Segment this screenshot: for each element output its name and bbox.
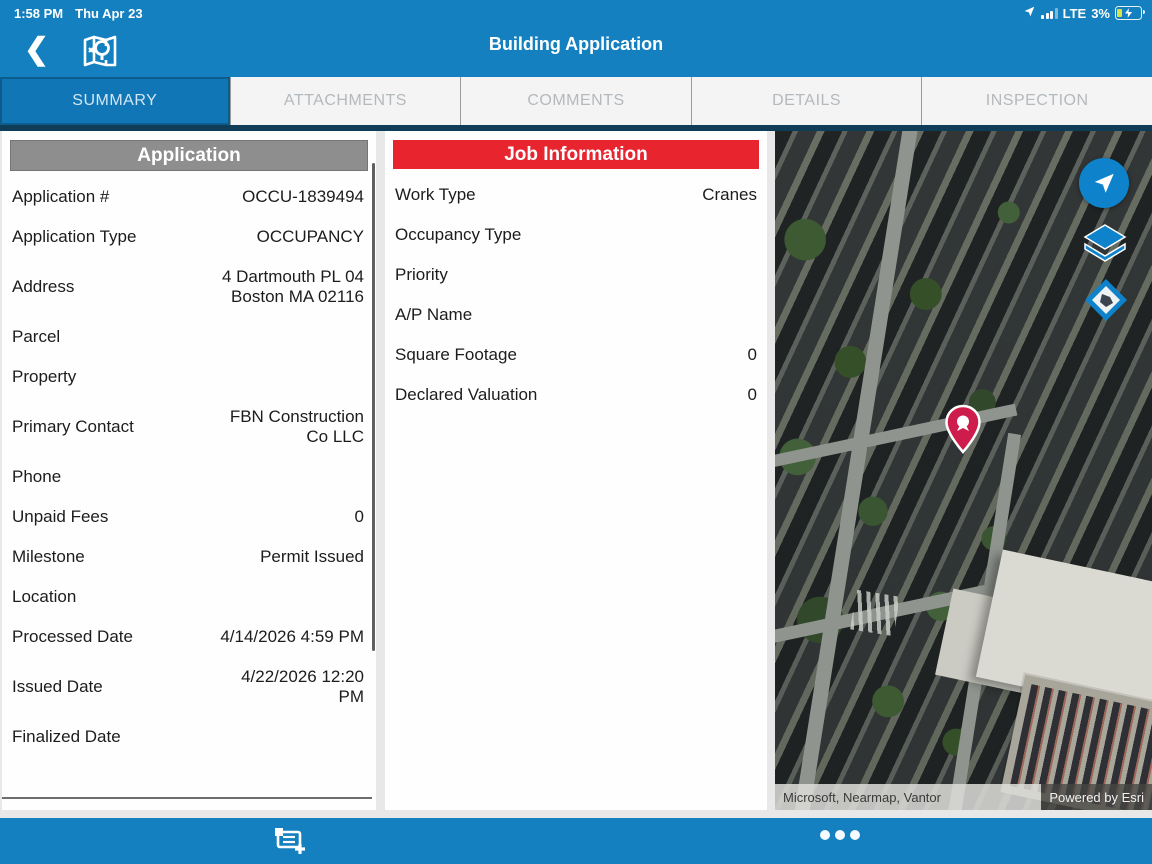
job-information-panel: Job Information Work Type Cranes Occupan… bbox=[385, 131, 767, 810]
tab-bar: SUMMARY ATTACHMENTS COMMENTS DETAILS INS… bbox=[0, 77, 1152, 125]
battery-charging-icon bbox=[1115, 6, 1142, 20]
locate-me-button[interactable] bbox=[1079, 158, 1129, 208]
map-attribution: Microsoft, Nearmap, Vantor Powered by Es… bbox=[775, 784, 1152, 810]
vertical-scrollbar[interactable] bbox=[372, 163, 375, 651]
field-row-milestone: Milestone Permit Issued bbox=[2, 537, 376, 577]
map-intersection bbox=[850, 590, 900, 636]
field-label: Square Footage bbox=[395, 345, 517, 365]
tab-attachments[interactable]: ATTACHMENTS bbox=[231, 77, 462, 125]
more-options-button[interactable] bbox=[820, 830, 860, 840]
field-row-application-type: Application Type OCCUPANCY bbox=[2, 217, 376, 257]
content-area: Application Application # OCCU-1839494 A… bbox=[0, 131, 1152, 818]
job-panel-title: Job Information bbox=[393, 140, 759, 169]
layers-button[interactable] bbox=[1079, 219, 1131, 271]
status-time: 1:58 PM bbox=[14, 6, 63, 21]
field-label: Unpaid Fees bbox=[12, 507, 108, 527]
row-divider bbox=[2, 797, 372, 799]
field-label: Work Type bbox=[395, 185, 476, 205]
tab-inspection[interactable]: INSPECTION bbox=[922, 77, 1152, 125]
field-row-application-number: Application # OCCU-1839494 bbox=[2, 177, 376, 217]
field-row-unpaid-fees: Unpaid Fees 0 bbox=[2, 497, 376, 537]
field-row-location: Location bbox=[2, 577, 376, 617]
status-network: LTE bbox=[1063, 6, 1087, 21]
page-title: Building Application bbox=[0, 34, 1152, 55]
field-label: Issued Date bbox=[12, 677, 103, 697]
field-row-work-type: Work Type Cranes bbox=[385, 175, 767, 215]
field-row-primary-contact: Primary Contact FBN Construction Co LLC bbox=[2, 397, 376, 457]
tab-bar-underline bbox=[0, 125, 1152, 131]
field-value: Permit Issued bbox=[260, 547, 364, 567]
field-row-occupancy-type: Occupancy Type bbox=[385, 215, 767, 255]
field-label: Milestone bbox=[12, 547, 85, 567]
field-value: 4/22/2026 12:20 PM bbox=[241, 667, 364, 707]
field-value: OCCU-1839494 bbox=[242, 187, 364, 207]
field-label: Priority bbox=[395, 265, 448, 285]
field-value: OCCUPANCY bbox=[257, 227, 364, 247]
tab-summary[interactable]: SUMMARY bbox=[0, 77, 231, 125]
field-label: Application Type bbox=[12, 227, 136, 247]
field-label: Location bbox=[12, 587, 76, 607]
basemap-toggle-button[interactable] bbox=[1083, 277, 1129, 323]
status-battery-percent: 3% bbox=[1091, 6, 1110, 21]
field-value: 0 bbox=[748, 345, 757, 365]
status-date: Thu Apr 23 bbox=[75, 6, 142, 21]
field-value: 0 bbox=[748, 385, 757, 405]
field-value: Cranes bbox=[702, 185, 757, 205]
field-row-processed-date: Processed Date 4/14/2026 4:59 PM bbox=[2, 617, 376, 657]
field-row-finalized-date: Finalized Date bbox=[2, 717, 376, 757]
field-label: A/P Name bbox=[395, 305, 472, 325]
map-attribution-sources: Microsoft, Nearmap, Vantor bbox=[775, 784, 1041, 810]
application-panel: Application Application # OCCU-1839494 A… bbox=[2, 131, 376, 810]
field-value: 4/14/2026 4:59 PM bbox=[220, 627, 364, 647]
field-row-issued-date: Issued Date 4/22/2026 12:20 PM bbox=[2, 657, 376, 717]
map-pin[interactable] bbox=[943, 404, 983, 461]
tab-comments[interactable]: COMMENTS bbox=[461, 77, 692, 125]
location-arrow-icon bbox=[1023, 5, 1036, 21]
field-label: Parcel bbox=[12, 327, 60, 347]
field-label: Occupancy Type bbox=[395, 225, 521, 245]
field-row-priority: Priority bbox=[385, 255, 767, 295]
tab-details[interactable]: DETAILS bbox=[692, 77, 923, 125]
field-row-property: Property bbox=[2, 357, 376, 397]
field-row-declared-valuation: Declared Valuation 0 bbox=[385, 375, 767, 415]
field-label: Declared Valuation bbox=[395, 385, 537, 405]
map-canvas[interactable]: Microsoft, Nearmap, Vantor Powered by Es… bbox=[775, 131, 1152, 810]
field-label: Processed Date bbox=[12, 627, 133, 647]
map-attribution-esri: Powered by Esri bbox=[1041, 784, 1152, 810]
field-row-ap-name: A/P Name bbox=[385, 295, 767, 335]
field-label: Application # bbox=[12, 187, 109, 207]
field-row-address: Address 4 Dartmouth PL 04 Boston MA 0211… bbox=[2, 257, 376, 317]
field-row-square-footage: Square Footage 0 bbox=[385, 335, 767, 375]
field-label: Property bbox=[12, 367, 76, 387]
field-row-parcel: Parcel bbox=[2, 317, 376, 357]
field-value: 0 bbox=[355, 507, 364, 527]
field-row-phone: Phone bbox=[2, 457, 376, 497]
field-label: Address bbox=[12, 277, 74, 297]
status-bar: 1:58 PM Thu Apr 23 LTE 3% bbox=[0, 0, 1152, 24]
add-note-button[interactable] bbox=[272, 825, 308, 862]
application-panel-title: Application bbox=[10, 140, 368, 171]
field-value: FBN Construction Co LLC bbox=[230, 407, 364, 447]
field-label: Phone bbox=[12, 467, 61, 487]
bottom-toolbar bbox=[0, 818, 1152, 864]
app-header: 1:58 PM Thu Apr 23 LTE 3% ❮ Bui bbox=[0, 0, 1152, 77]
field-value: 4 Dartmouth PL 04 Boston MA 02116 bbox=[222, 267, 364, 307]
field-label: Finalized Date bbox=[12, 727, 121, 747]
field-label: Primary Contact bbox=[12, 417, 134, 437]
signal-bars-icon bbox=[1041, 8, 1058, 19]
